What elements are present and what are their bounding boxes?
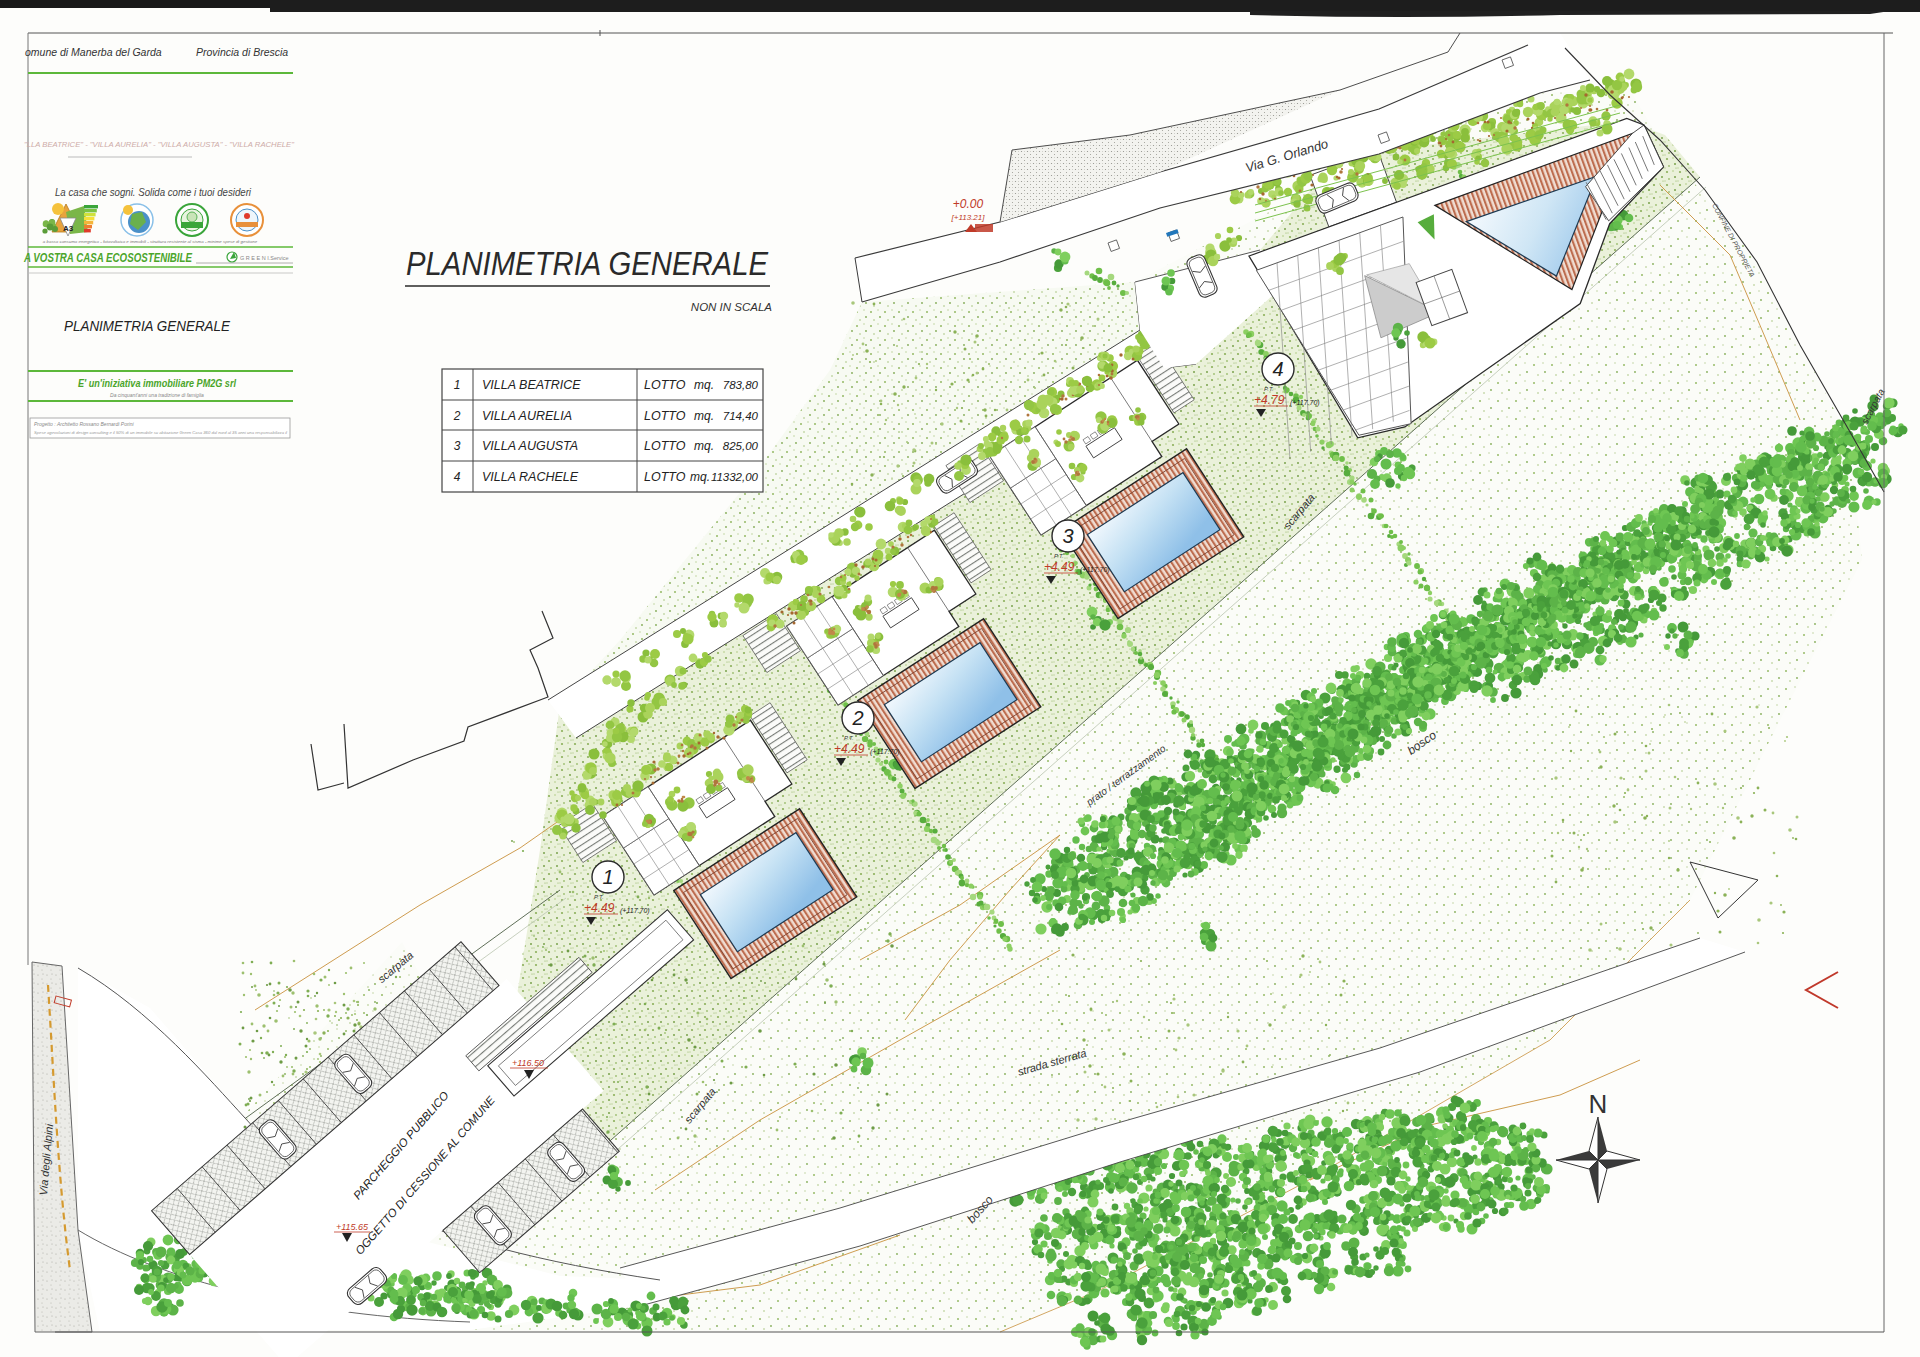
svg-text:4: 4 [454, 470, 461, 484]
svg-text:VILLA BEATRICE: VILLA BEATRICE [482, 378, 581, 392]
svg-text:2: 2 [453, 409, 461, 423]
svg-text:P.T.: P.T. [1054, 553, 1064, 559]
svg-text:1: 1 [602, 866, 613, 888]
svg-text:(+117.70): (+117.70) [1080, 566, 1110, 574]
svg-text:G R E E N I.Service: G R E E N I.Service [240, 255, 289, 261]
svg-text:PLANIMETRIA GENERALE: PLANIMETRIA GENERALE [406, 245, 769, 282]
svg-text:"LLA BEATRICE" - "VILLA AURELI: "LLA BEATRICE" - "VILLA AURELIA" - "VILL… [24, 140, 295, 149]
svg-text:Da cinquant'anni una tradizion: Da cinquant'anni una tradizione di famig… [110, 392, 204, 398]
svg-text:mq.: mq. [694, 409, 714, 423]
svg-text:LOTTO: LOTTO [644, 470, 686, 484]
svg-text:VILLA AURELIA: VILLA AURELIA [482, 409, 572, 423]
svg-text:A VOSTRA CASA ECOSOSTENIBILE: A VOSTRA CASA ECOSOSTENIBILE [23, 251, 192, 265]
svg-text:PLANIMETRIA GENERALE: PLANIMETRIA GENERALE [64, 317, 231, 334]
svg-text:N: N [1589, 1089, 1608, 1119]
svg-text:1: 1 [454, 378, 461, 392]
svg-text:mq.: mq. [694, 439, 714, 453]
svg-text:VILLA AUGUSTA: VILLA AUGUSTA [482, 439, 578, 453]
svg-text:+4.79: +4.79 [1254, 393, 1285, 407]
svg-text:LOTTO: LOTTO [644, 409, 686, 423]
svg-text:2: 2 [851, 707, 863, 729]
svg-text:+0.00: +0.00 [953, 197, 984, 211]
svg-text:LOTTO: LOTTO [644, 378, 686, 392]
svg-text:(+117.70): (+117.70) [620, 907, 650, 915]
svg-text:4: 4 [1272, 358, 1283, 380]
svg-text:LOTTO: LOTTO [644, 439, 686, 453]
svg-text:A3: A3 [63, 224, 74, 233]
svg-text:E' un'iniziativa immobiliare P: E' un'iniziativa immobiliare PM2G srl [78, 377, 237, 389]
svg-text:(+117.70): (+117.70) [870, 748, 900, 756]
svg-text:3: 3 [1062, 525, 1073, 547]
svg-text:omune di Manerba del Garda: omune di Manerba del Garda [25, 46, 162, 58]
svg-text:P.T.: P.T. [1264, 386, 1274, 392]
svg-text:Spese agevolazioni di design c: Spese agevolazioni di design consulting … [34, 430, 288, 435]
svg-text:La casa che sogni. Solida come: La casa che sogni. Solida come i tuoi de… [55, 187, 252, 198]
svg-text:[+113.21]: [+113.21] [951, 213, 986, 222]
svg-text:mq.: mq. [694, 378, 714, 392]
svg-text:VILLA RACHELE: VILLA RACHELE [482, 470, 579, 484]
svg-text:Provincia di Brescia: Provincia di Brescia [196, 46, 288, 58]
svg-text:(+117.70): (+117.70) [1290, 399, 1320, 407]
svg-text:3: 3 [454, 439, 461, 453]
svg-text:a basso consumo energetico - f: a basso consumo energetico - fotovoltaic… [43, 239, 258, 244]
svg-text:+4.49: +4.49 [834, 742, 865, 756]
svg-text:Progetto : Architetto Rossano: Progetto : Architetto Rossano Bernardi P… [34, 421, 134, 427]
svg-text:+4.49: +4.49 [1044, 560, 1075, 574]
svg-text:+4.49: +4.49 [584, 901, 615, 915]
svg-text:825,00: 825,00 [723, 440, 759, 452]
svg-text:+116.50: +116.50 [512, 1058, 544, 1068]
svg-text:+115.65: +115.65 [336, 1222, 369, 1232]
svg-text:783,80: 783,80 [723, 379, 759, 391]
svg-text:11332,00: 11332,00 [711, 471, 759, 483]
svg-text:P.T.: P.T. [844, 735, 854, 741]
svg-text:714,40: 714,40 [723, 410, 759, 422]
svg-text:mq.: mq. [690, 470, 710, 484]
svg-text:NON IN SCALA: NON IN SCALA [691, 301, 772, 313]
svg-text:P.T.: P.T. [594, 894, 604, 900]
